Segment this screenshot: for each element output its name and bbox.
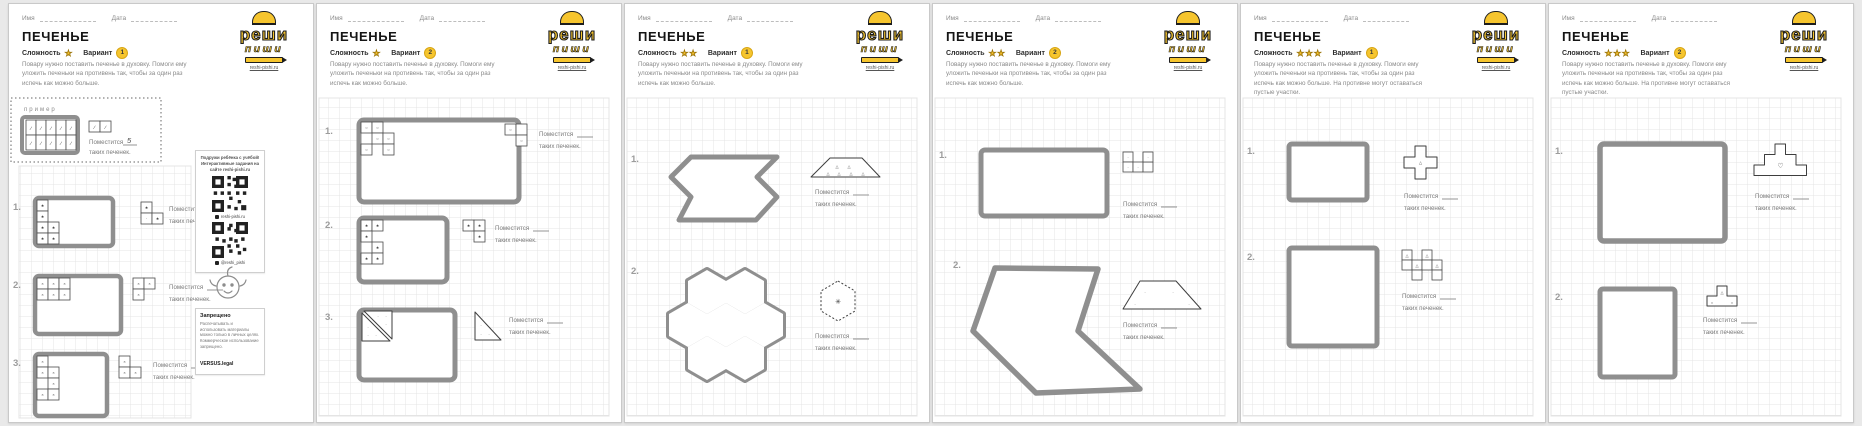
reference-cookie: ∕∕ — [89, 121, 111, 132]
svg-text:таких печенек.: таких печенек. — [539, 143, 581, 150]
svg-text:·: · — [385, 322, 386, 327]
link-icon — [215, 215, 219, 219]
svg-text:·: · — [488, 332, 489, 337]
qr-caption-row: reshi-pishi.ru — [200, 214, 260, 219]
svg-text:·: · — [480, 323, 481, 328]
date-blank — [1055, 14, 1101, 22]
worksheet-page-1: Имя Дата реши пиши reshi-pishi.ru ПЕЧЕНЬ… — [8, 3, 314, 423]
site-link: reshi-pishi.ru — [1763, 65, 1845, 71]
svg-text:3.: 3. — [325, 312, 333, 323]
meta-row: Сложность ★★ Вариант 1 — [638, 47, 753, 59]
pencil-icon — [245, 57, 283, 63]
date-blank — [1363, 14, 1409, 22]
worksheet-page-4: Имя Дата реши пиши reshi-pishi.ru ПЕЧЕНЬ… — [932, 3, 1238, 423]
svg-text:·: · — [377, 314, 378, 319]
meta-row: Сложность ★★★ Вариант 2 — [1562, 47, 1686, 59]
difficulty-stars: ★ — [373, 49, 382, 58]
svg-text:✳: ✳ — [835, 298, 841, 306]
date-label: Дата — [1652, 15, 1666, 22]
svg-text:Поместится: Поместится — [539, 131, 573, 138]
logo-word-2: пиши — [1763, 44, 1845, 56]
page-title: ПЕЧЕНЬЕ — [22, 29, 89, 44]
svg-text:2.: 2. — [13, 280, 21, 291]
grid — [627, 98, 917, 416]
variant-badge: 2 — [1049, 47, 1061, 59]
date-label: Дата — [1036, 15, 1050, 22]
svg-text:★: ★ — [41, 214, 45, 219]
svg-text:·: · — [385, 314, 386, 319]
difficulty-label: Сложность — [638, 50, 677, 57]
placed-cookies: ∕∕ ∕∕ ∕ ∕∕ ∕∕ ∕ — [26, 120, 76, 150]
variant-badge: 1 — [741, 47, 753, 59]
svg-text:Поместится: Поместится — [1402, 293, 1436, 300]
svg-text:таких печенек.: таких печенек. — [815, 345, 857, 352]
variant-label: Вариант — [83, 50, 112, 57]
svg-text:★: ★ — [365, 256, 369, 261]
difficulty-stars: ★ — [65, 49, 74, 58]
difficulty-stars: ★★★ — [1297, 49, 1323, 58]
logo-word-1: реши — [1455, 26, 1537, 44]
forbidden-title: Запрещено — [200, 313, 260, 319]
pencil-icon — [1477, 57, 1515, 63]
worksheet-body: 1. △ Поместится таких печенек. 2. — [1241, 96, 1546, 422]
svg-text:·: · — [480, 332, 481, 337]
svg-text:★: ★ — [376, 223, 380, 228]
worksheet-body: 1. ·· ·· Поместится таких печенек. 2. — [933, 96, 1238, 422]
svg-text:·: · — [367, 325, 368, 330]
svg-text:Поместится: Поместится — [815, 333, 849, 340]
baking-tray — [1289, 248, 1377, 346]
svg-text:★: ★ — [145, 205, 149, 210]
variant-label: Вариант — [391, 50, 420, 57]
svg-text:·: · — [1137, 165, 1138, 170]
name-blank — [656, 14, 712, 22]
promo-text: Подружи ребёнка с учёбой! Интерактивные … — [200, 155, 260, 173]
svg-text:таких печенек.: таких печенек. — [1703, 329, 1745, 336]
variant-label: Вариант — [1640, 50, 1669, 57]
instructions: Повару нужно поставить печенье в духовку… — [330, 60, 508, 88]
copyright-card: Запрещено Распечатывать и использовать м… — [195, 308, 265, 375]
page-title: ПЕЧЕНЬЕ — [946, 29, 1013, 44]
logo-word-1: реши — [839, 26, 921, 44]
svg-text:таких печенек.: таких печенек. — [1123, 213, 1165, 220]
worksheet-page-3: Имя Дата реши пиши reshi-pishi.ru ПЕЧЕНЬ… — [624, 3, 930, 423]
svg-text:Поместится: Поместится — [1755, 193, 1789, 200]
svg-text:1.: 1. — [939, 150, 947, 161]
name-date-row: Имя Дата — [946, 14, 1101, 22]
svg-text:1.: 1. — [13, 202, 21, 213]
name-label: Имя — [638, 15, 651, 22]
svg-text:2.: 2. — [1247, 252, 1255, 263]
svg-text:★: ★ — [376, 245, 380, 250]
svg-text:Поместится: Поместится — [1123, 322, 1157, 329]
svg-text:♡: ♡ — [1777, 162, 1783, 170]
svg-text:★: ★ — [156, 216, 160, 221]
svg-text:Поместится: Поместится — [169, 284, 203, 291]
name-label: Имя — [1562, 15, 1575, 22]
logo-word-1: реши — [1763, 26, 1845, 44]
name-date-row: Имя Дата — [330, 14, 485, 22]
svg-text:таких печенек.: таких печенек. — [509, 329, 551, 336]
name-date-row: Имя Дата — [638, 14, 793, 22]
forbidden-text: Распечатывать и использовать материалы м… — [200, 321, 260, 349]
tray-shape — [671, 157, 777, 220]
svg-text:·: · — [1127, 155, 1128, 160]
svg-text:1.: 1. — [1555, 146, 1563, 157]
qr-code-icon — [212, 176, 248, 212]
logo: реши пиши reshi-pishi.ru — [223, 11, 305, 71]
placed-cookies: ★★ ★★ ★★ — [361, 220, 383, 264]
baking-tray — [981, 150, 1107, 216]
variant-label: Вариант — [1016, 50, 1045, 57]
svg-text:Поместится: Поместится — [495, 225, 529, 232]
worksheet-body: 1. △△ △△ △△ Поместится таких печенек. 2. — [625, 96, 930, 422]
meta-row: Сложность ★★★ Вариант 1 — [1254, 47, 1378, 59]
qr-code-icon — [212, 222, 248, 258]
svg-text:★: ★ — [467, 223, 471, 228]
meta-row: Сложность ★ Вариант 1 — [22, 47, 128, 59]
svg-text:2.: 2. — [1555, 292, 1563, 303]
svg-text:·: · — [1188, 302, 1189, 307]
worksheet-body: пример ∕∕ ∕∕ ∕ ∕∕ ∕∕ ∕ — [9, 96, 314, 422]
svg-text:★: ★ — [376, 256, 380, 261]
svg-text:Поместится: Поместится — [1703, 317, 1737, 324]
logo: реши пиши reshi-pishi.ru — [531, 11, 613, 71]
logo-word-1: реши — [531, 26, 613, 44]
name-date-row: Имя Дата — [1562, 14, 1717, 22]
site-link: reshi-pishi.ru — [1147, 65, 1229, 71]
chef-hat-icon — [252, 11, 276, 25]
svg-text:★: ★ — [52, 225, 56, 230]
baking-tray — [1600, 144, 1725, 241]
name-label: Имя — [946, 15, 959, 22]
date-blank — [1671, 14, 1717, 22]
name-blank — [1580, 14, 1636, 22]
name-blank — [964, 14, 1020, 22]
svg-text:·: · — [375, 333, 376, 338]
logo-word-2: пиши — [1455, 44, 1537, 56]
placed-cookies: ×× ×× ×× — [37, 278, 70, 300]
logo: реши пиши reshi-pishi.ru — [1147, 11, 1229, 71]
date-blank — [439, 14, 485, 22]
svg-text:★: ★ — [365, 223, 369, 228]
svg-text:2.: 2. — [631, 266, 639, 277]
date-label: Дата — [1344, 15, 1358, 22]
name-label: Имя — [330, 15, 343, 22]
svg-text:1.: 1. — [325, 126, 333, 137]
difficulty-label: Сложность — [330, 50, 369, 57]
svg-text:Поместится: Поместится — [153, 362, 187, 369]
site-link: reshi-pishi.ru — [839, 65, 921, 71]
svg-text:★: ★ — [365, 234, 369, 239]
svg-text:★: ★ — [41, 225, 45, 230]
svg-text:таких печенек.: таких печенек. — [1755, 205, 1797, 212]
worksheet-strip: Имя Дата реши пиши reshi-pishi.ru ПЕЧЕНЬ… — [0, 0, 1862, 420]
svg-text:3.: 3. — [13, 358, 21, 369]
site-link: reshi-pishi.ru — [223, 65, 305, 71]
svg-text:★: ★ — [478, 223, 482, 228]
difficulty-stars: ★★★ — [1605, 49, 1631, 58]
page-title: ПЕЧЕНЬЕ — [638, 29, 705, 44]
svg-text:★: ★ — [41, 203, 45, 208]
promo-card: Подружи ребёнка с учёбой! Интерактивные … — [195, 150, 265, 273]
pencil-icon — [1169, 57, 1207, 63]
pencil-icon — [553, 57, 591, 63]
pencil-icon — [1785, 57, 1823, 63]
svg-text:★: ★ — [41, 236, 45, 241]
svg-text:таких печенек.: таких печенек. — [1402, 305, 1444, 312]
svg-text:1.: 1. — [1247, 146, 1255, 157]
variant-badge: 1 — [116, 47, 128, 59]
name-blank — [1272, 14, 1328, 22]
svg-text:★: ★ — [52, 236, 56, 241]
difficulty-label: Сложность — [1254, 50, 1293, 57]
svg-text:·: · — [1147, 155, 1148, 160]
name-label: Имя — [22, 15, 35, 22]
svg-text:1.: 1. — [631, 154, 639, 165]
instructions: Повару нужно поставить печенье в духовку… — [638, 60, 816, 88]
date-label: Дата — [112, 15, 126, 22]
doodle-character — [205, 260, 251, 306]
logo: реши пиши reshi-pishi.ru — [1455, 11, 1537, 71]
logo-word-2: пиши — [531, 44, 613, 56]
page-title: ПЕЧЕНЬЕ — [1562, 29, 1629, 44]
instructions: Повару нужно поставить печенье в духовку… — [1562, 60, 1740, 98]
svg-text:·: · — [1172, 290, 1173, 295]
difficulty-stars: ★★ — [989, 49, 1006, 58]
instructions: Повару нужно поставить печенье в духовку… — [22, 60, 200, 88]
example-box: пример ∕∕ ∕∕ ∕ ∕∕ ∕∕ ∕ — [11, 98, 161, 162]
logo-word-2: пиши — [1147, 44, 1229, 56]
meta-row: Сложность ★ Вариант 2 — [330, 47, 436, 59]
difficulty-label: Сложность — [946, 50, 985, 57]
svg-text:Поместится: Поместится — [509, 317, 543, 324]
worksheet-page-5: Имя Дата реши пиши reshi-pishi.ru ПЕЧЕНЬ… — [1240, 3, 1546, 423]
svg-text:·: · — [146, 216, 147, 221]
worksheet-page-6: Имя Дата реши пиши reshi-pishi.ru ПЕЧЕНЬ… — [1548, 3, 1854, 423]
chef-hat-icon — [868, 11, 892, 25]
chef-hat-icon — [560, 11, 584, 25]
logo-word-1: реши — [223, 26, 305, 44]
svg-text:Поместится: Поместится — [1404, 193, 1438, 200]
svg-text:·: · — [1134, 302, 1135, 307]
svg-text:Поместится: Поместится — [815, 189, 849, 196]
chef-hat-icon — [1176, 11, 1200, 25]
logo-word-1: реши — [1147, 26, 1229, 44]
logo: реши пиши reshi-pishi.ru — [839, 11, 921, 71]
name-blank — [348, 14, 404, 22]
worksheet-body: 1. ♡ Поместится таких печенек. 2. △ — [1549, 96, 1854, 422]
baking-tray — [1289, 144, 1367, 200]
variant-label: Вариант — [1332, 50, 1361, 57]
site-link: reshi-pishi.ru — [531, 65, 613, 71]
logo: реши пиши reshi-pishi.ru — [1763, 11, 1845, 71]
name-label: Имя — [1254, 15, 1267, 22]
worksheet-page-2: Имя Дата реши пиши reshi-pishi.ru ПЕЧЕНЬ… — [316, 3, 622, 423]
date-blank — [131, 14, 177, 22]
variant-badge: 2 — [1674, 47, 1686, 59]
svg-text:·: · — [367, 333, 368, 338]
name-date-row: Имя Дата — [1254, 14, 1409, 22]
page-title: ПЕЧЕНЬЕ — [1254, 29, 1321, 44]
site-link: reshi-pishi.ru — [1455, 65, 1537, 71]
svg-text:2.: 2. — [325, 220, 333, 231]
instructions: Повару нужно поставить печенье в духовку… — [1254, 60, 1432, 98]
instructions: Повару нужно поставить печенье в духовку… — [946, 60, 1124, 88]
name-date-row: Имя Дата — [22, 14, 177, 22]
svg-text:·: · — [1127, 165, 1128, 170]
difficulty-label: Сложность — [1562, 50, 1601, 57]
chef-hat-icon — [1484, 11, 1508, 25]
page-title: ПЕЧЕНЬЕ — [330, 29, 397, 44]
svg-text:★: ★ — [478, 234, 482, 239]
chef-hat-icon — [1792, 11, 1816, 25]
variant-badge: 2 — [424, 47, 436, 59]
svg-text:таких печенек.: таких печенек. — [495, 237, 537, 244]
date-blank — [747, 14, 793, 22]
svg-text:2.: 2. — [953, 260, 961, 271]
date-label: Дата — [728, 15, 742, 22]
svg-text:таких печенек.: таких печенек. — [153, 374, 195, 381]
difficulty-stars: ★★ — [681, 49, 698, 58]
forbidden-brand: VERSUS.legal — [200, 361, 233, 367]
tray-shape — [669, 270, 783, 380]
svg-text:·: · — [1144, 290, 1145, 295]
svg-text:Поместится: Поместится — [89, 139, 123, 146]
logo-word-2: пиши — [223, 44, 305, 56]
variant-label: Вариант — [708, 50, 737, 57]
meta-row: Сложность ★★ Вариант 2 — [946, 47, 1061, 59]
svg-text:таких печенек.: таких печенек. — [815, 201, 857, 208]
example-label: пример — [24, 107, 57, 113]
worksheet-body: 1. ○○ ○○ ○○ ○○ Поместится — [317, 96, 622, 422]
date-label: Дата — [420, 15, 434, 22]
svg-text:таких печенек.: таких печенек. — [1123, 334, 1165, 341]
logo-word-2: пиши — [839, 44, 921, 56]
svg-text:таких печенек.: таких печенек. — [1404, 205, 1446, 212]
baking-tray — [1600, 289, 1675, 377]
name-blank — [40, 14, 96, 22]
qr1-caption: reshi-pishi.ru — [221, 214, 245, 219]
variant-badge: 1 — [1366, 47, 1378, 59]
pencil-icon — [861, 57, 899, 63]
svg-text:таких печенек.: таких печенек. — [89, 149, 131, 156]
difficulty-label: Сложность — [22, 50, 61, 57]
svg-text:Поместится: Поместится — [1123, 201, 1157, 208]
